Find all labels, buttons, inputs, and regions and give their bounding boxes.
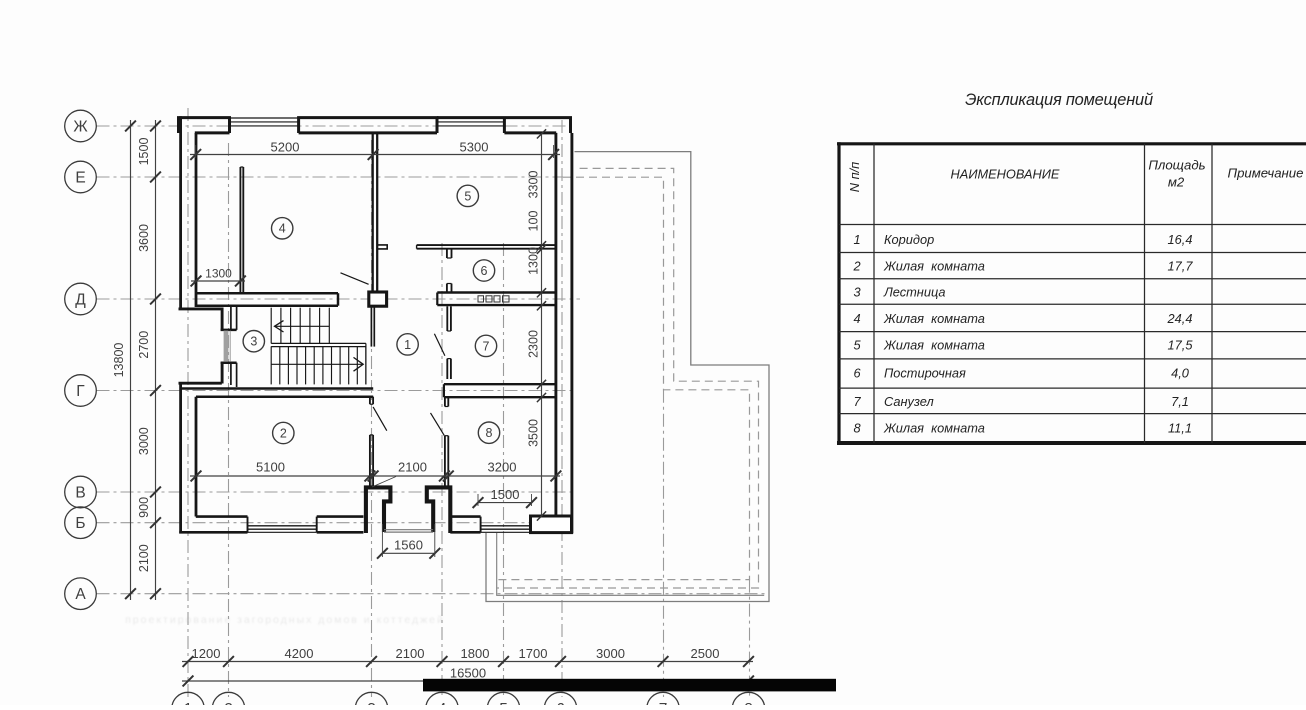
- svg-text:3000: 3000: [596, 646, 625, 661]
- svg-text:3300: 3300: [527, 171, 541, 199]
- svg-text:100: 100: [527, 211, 541, 232]
- svg-text:4: 4: [853, 311, 860, 326]
- svg-text:3: 3: [853, 285, 860, 300]
- svg-text:1500: 1500: [491, 487, 520, 502]
- svg-text:А: А: [75, 586, 86, 603]
- svg-text:5200: 5200: [271, 140, 300, 155]
- svg-text:2300: 2300: [527, 330, 541, 358]
- svg-text:Лестница: Лестница: [883, 285, 946, 300]
- svg-text:1700: 1700: [519, 646, 548, 661]
- svg-text:900: 900: [137, 497, 151, 518]
- svg-text:Примечание: Примечание: [1228, 166, 1304, 181]
- svg-text:5: 5: [499, 701, 508, 705]
- svg-text:Санузел: Санузел: [884, 394, 934, 409]
- svg-text:Жилая комната: Жилая комната: [883, 421, 985, 436]
- svg-text:3000: 3000: [137, 427, 151, 455]
- svg-text:3500: 3500: [527, 419, 541, 447]
- svg-text:Г: Г: [76, 383, 85, 400]
- svg-text:Ж: Ж: [73, 118, 88, 135]
- svg-text:1: 1: [853, 232, 860, 247]
- svg-text:Е: Е: [75, 169, 85, 186]
- svg-text:7,1: 7,1: [1171, 394, 1189, 409]
- svg-text:16500: 16500: [450, 666, 486, 681]
- svg-text:6: 6: [853, 366, 861, 381]
- svg-text:Д: Д: [75, 291, 86, 308]
- svg-text:Жилая комната: Жилая комната: [883, 259, 985, 274]
- svg-text:Б: Б: [75, 515, 85, 532]
- svg-text:5: 5: [464, 189, 471, 203]
- svg-text:8: 8: [486, 426, 493, 440]
- svg-text:Жилая комната: Жилая комната: [883, 311, 985, 326]
- svg-text:1300: 1300: [205, 267, 232, 281]
- svg-text:16,4: 16,4: [1168, 232, 1193, 247]
- svg-text:4,0: 4,0: [1171, 366, 1190, 381]
- svg-text:7: 7: [659, 701, 668, 705]
- svg-text:5300: 5300: [460, 140, 489, 155]
- svg-text:8: 8: [853, 421, 861, 436]
- svg-text:4: 4: [438, 701, 447, 705]
- svg-text:2100: 2100: [398, 460, 427, 475]
- svg-text:7: 7: [483, 339, 490, 353]
- svg-text:13800: 13800: [112, 343, 126, 378]
- svg-text:НАИМЕНОВАНИЕ: НАИМЕНОВАНИЕ: [951, 167, 1060, 182]
- svg-text:6: 6: [481, 264, 488, 278]
- svg-text:Площадь: Площадь: [1148, 158, 1205, 173]
- svg-text:3: 3: [250, 335, 257, 349]
- svg-text:6: 6: [556, 701, 565, 705]
- svg-text:8: 8: [744, 701, 753, 705]
- svg-text:3600: 3600: [137, 224, 151, 252]
- svg-text:1200: 1200: [192, 646, 221, 661]
- svg-text:2: 2: [852, 259, 860, 274]
- svg-text:N п/п: N п/п: [847, 162, 862, 192]
- svg-text:2100: 2100: [396, 646, 425, 661]
- svg-text:проектирование загородных домо: проектирование загородных домов и коттед…: [125, 614, 445, 626]
- svg-text:7: 7: [853, 394, 861, 409]
- svg-text:17,7: 17,7: [1168, 259, 1194, 274]
- svg-text:2700: 2700: [137, 331, 151, 359]
- svg-text:Жилая комната: Жилая комната: [883, 338, 985, 353]
- svg-text:3: 3: [367, 701, 376, 705]
- svg-text:2100: 2100: [137, 544, 151, 572]
- svg-text:1560: 1560: [394, 538, 423, 553]
- svg-text:3200: 3200: [488, 460, 517, 475]
- svg-text:В: В: [75, 484, 85, 501]
- svg-text:Экспликация помещений: Экспликация помещений: [965, 91, 1153, 109]
- svg-text:17,5: 17,5: [1168, 338, 1194, 353]
- svg-text:1: 1: [404, 338, 411, 352]
- svg-text:Постирочная: Постирочная: [884, 366, 966, 381]
- svg-text:1: 1: [184, 701, 193, 705]
- svg-text:2: 2: [224, 701, 233, 705]
- svg-text:1800: 1800: [461, 646, 490, 661]
- svg-text:5: 5: [853, 338, 861, 353]
- svg-text:4: 4: [279, 222, 286, 236]
- svg-text:Коридор: Коридор: [884, 232, 934, 247]
- svg-text:2: 2: [280, 426, 287, 440]
- svg-text:4200: 4200: [285, 646, 314, 661]
- svg-text:24,4: 24,4: [1167, 311, 1193, 326]
- svg-text:11,1: 11,1: [1168, 421, 1192, 436]
- svg-text:5100: 5100: [256, 460, 285, 475]
- svg-text:1500: 1500: [137, 138, 151, 166]
- svg-text:м2: м2: [1168, 175, 1185, 190]
- svg-text:2500: 2500: [691, 646, 720, 661]
- svg-text:1300: 1300: [527, 247, 541, 275]
